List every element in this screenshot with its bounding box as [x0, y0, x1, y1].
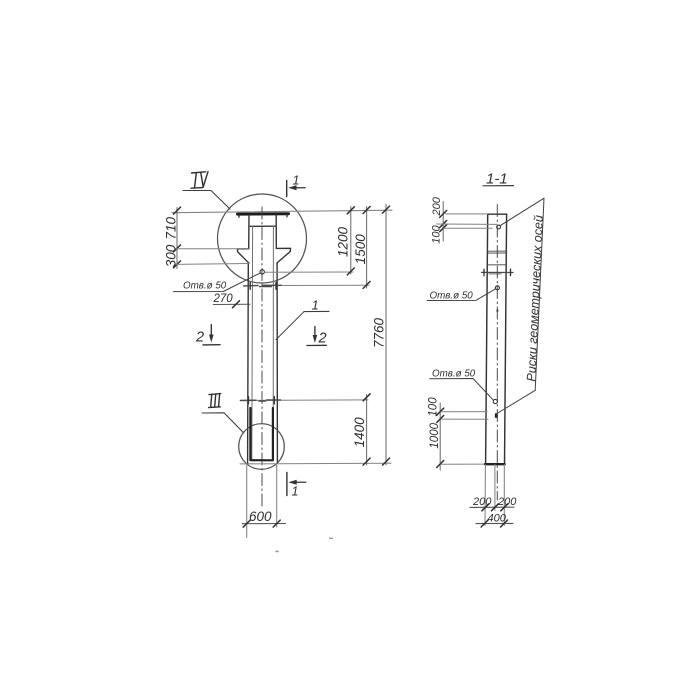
svg-text:200: 200	[497, 496, 517, 508]
svg-text:1-1: 1-1	[486, 171, 508, 188]
svg-text:Отв.ø 50: Отв.ø 50	[183, 281, 227, 292]
svg-text:1000: 1000	[429, 422, 441, 448]
svg-text:2: 2	[195, 330, 204, 346]
svg-text:1: 1	[312, 298, 319, 313]
svg-text:1: 1	[292, 485, 299, 499]
svg-text:200: 200	[431, 196, 443, 216]
svg-text:710: 710	[163, 217, 178, 240]
svg-text:1400: 1400	[352, 417, 367, 448]
svg-text:Отв.ø 50: Отв.ø 50	[430, 290, 474, 301]
svg-text:270: 270	[213, 293, 234, 305]
svg-text:400: 400	[488, 512, 507, 524]
svg-text:2: 2	[318, 331, 327, 347]
svg-text:1500: 1500	[353, 234, 368, 265]
svg-text:7760: 7760	[372, 317, 387, 348]
svg-text:Риски геометрических осей: Риски геометрических осей	[524, 215, 546, 382]
svg-text:Отв.ø 50: Отв.ø 50	[432, 368, 476, 379]
svg-text:100: 100	[427, 397, 439, 417]
svg-text:300: 300	[163, 244, 178, 267]
svg-text:200: 200	[472, 496, 492, 508]
svg-text:1: 1	[293, 174, 300, 188]
svg-text:100: 100	[430, 225, 442, 244]
svg-text:600: 600	[249, 509, 272, 524]
svg-text:1200: 1200	[336, 226, 351, 257]
